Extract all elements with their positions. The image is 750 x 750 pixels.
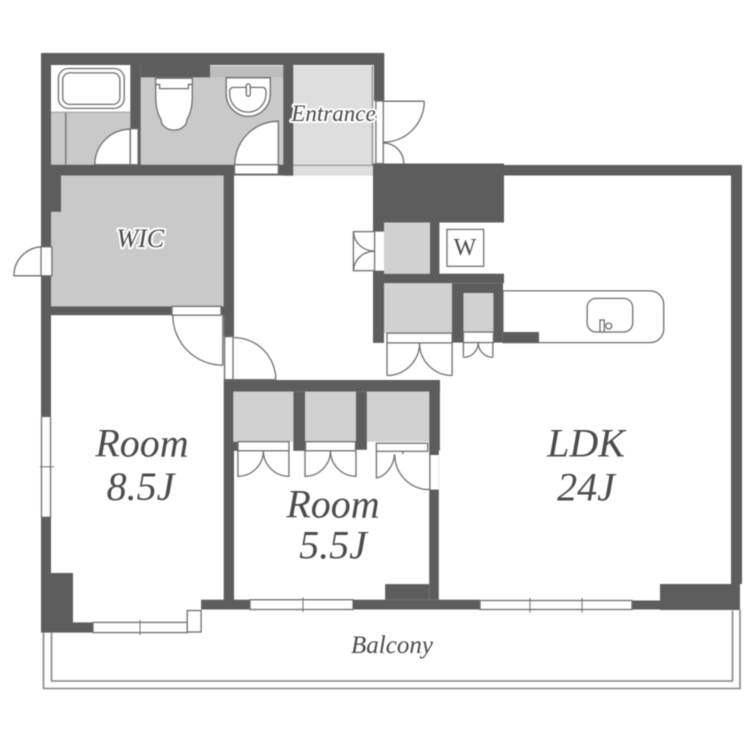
svg-text:Room: Room xyxy=(94,421,188,466)
svg-text:8.5J: 8.5J xyxy=(107,464,177,509)
svg-text:W: W xyxy=(454,235,477,261)
svg-text:Balcony: Balcony xyxy=(351,632,434,659)
svg-text:24J: 24J xyxy=(557,465,617,510)
svg-text:Entrance: Entrance xyxy=(290,101,375,126)
svg-text:5.5J: 5.5J xyxy=(299,523,369,568)
svg-text:WIC: WIC xyxy=(116,224,164,253)
svg-text:Room: Room xyxy=(285,482,379,527)
svg-text:LDK: LDK xyxy=(546,421,627,466)
